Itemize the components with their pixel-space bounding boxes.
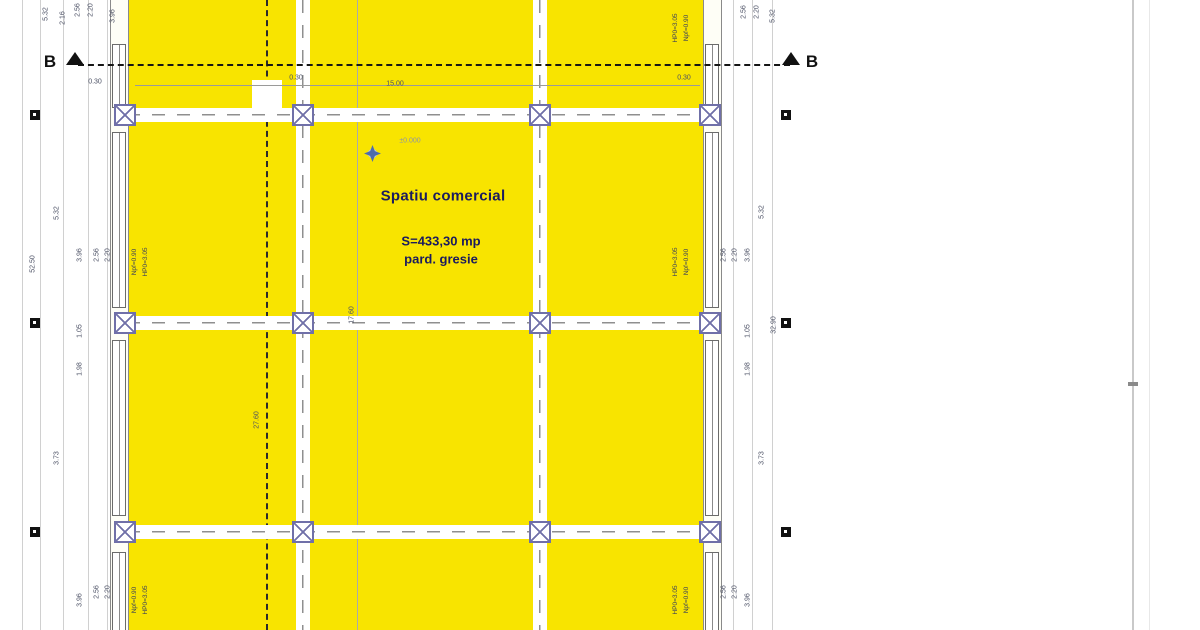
dimension-chain-line: [733, 0, 734, 630]
window: [705, 552, 719, 630]
dim-label: 3.96: [745, 248, 752, 262]
dim-label: 1.98: [745, 362, 752, 376]
dim-label: 2.56: [75, 3, 82, 17]
window-note: HP0=3.05: [143, 247, 150, 276]
dim-label: 5.32: [54, 206, 61, 220]
dim-label: 3.96: [77, 593, 84, 607]
column-marker: [114, 104, 136, 126]
dim-label: 2.20: [754, 5, 761, 19]
axis-marker: [30, 110, 40, 120]
dim-label: 2.56: [94, 585, 101, 599]
section-arrow-left: [66, 52, 84, 65]
column-marker: [292, 104, 314, 126]
dim-label: 1.98: [77, 362, 84, 376]
axis-marker: [781, 110, 791, 120]
column-marker: [292, 312, 314, 334]
dimension-chain-line: [22, 0, 23, 630]
window: [705, 132, 719, 308]
section-arrow-right: [782, 52, 800, 65]
window: [112, 340, 126, 516]
dim-label: 3.96: [110, 9, 117, 23]
window-note: HP0=3.05: [143, 585, 150, 614]
window: [112, 552, 126, 630]
dim-label: 1.05: [77, 324, 84, 338]
room-name: Spatiu comercial: [381, 188, 506, 205]
window-note: Npf=0.90: [684, 15, 691, 42]
dim-label: 3.73: [759, 451, 766, 465]
dim-label: 2.20: [105, 248, 112, 262]
dim-label: 0.30: [677, 75, 691, 82]
window-note: HP0=3.05: [673, 247, 680, 276]
axis-marker: [30, 527, 40, 537]
dim-label: 2.56: [94, 248, 101, 262]
dimension-chain-line: [752, 0, 753, 630]
column-marker: [699, 521, 721, 543]
page-edge-line: [1132, 0, 1134, 630]
window-note: Npf=0.90: [684, 587, 691, 614]
axis-marker: [781, 527, 791, 537]
beam-strip-horizontal: [127, 525, 703, 539]
dim-label: 1.05: [745, 324, 752, 338]
dimension-chain-line: [107, 0, 108, 630]
section-label-right: B: [806, 52, 818, 72]
window-note: Npf=0.90: [132, 587, 139, 614]
dimension-chain-line: [88, 0, 89, 630]
floor-plan-canvas: B B ±0.000 Spatiu comercial S=433,30 mp …: [0, 0, 1200, 630]
dim-label: 5.32: [43, 7, 50, 21]
column-marker: [529, 104, 551, 126]
window: [112, 132, 126, 308]
window: [705, 340, 719, 516]
window-note: HP0=3.05: [673, 13, 680, 42]
dim-label: 2.56: [741, 5, 748, 19]
column-marker: [114, 312, 136, 334]
dim-label: 32.90: [771, 316, 778, 334]
dim-label: 2.20: [732, 585, 739, 599]
level-value: ±0.000: [399, 138, 420, 145]
dim-label: 17.60: [349, 306, 356, 324]
dim-label: 27.60: [254, 411, 261, 429]
column-marker: [114, 521, 136, 543]
page-edge-line-faint: [1149, 0, 1150, 630]
edge-tick: [1128, 382, 1138, 386]
window: [112, 44, 126, 108]
section-line-bb: [78, 64, 790, 66]
dim-label: 2.20: [88, 3, 95, 17]
dim-label: 2.56: [721, 248, 728, 262]
window: [705, 44, 719, 108]
dim-label: 2.20: [732, 248, 739, 262]
level-marker-icon: [364, 145, 381, 162]
dim-label: 0.30: [88, 79, 102, 86]
dim-label: 5.32: [759, 205, 766, 219]
dim-label: 3.73: [54, 451, 61, 465]
dim-label: 5.32: [770, 9, 777, 23]
axis-marker: [781, 318, 791, 328]
dimension-chain-line: [63, 0, 64, 630]
room-area: S=433,30 mp: [401, 234, 480, 249]
beam-strip-horizontal: [127, 108, 703, 122]
beam-strip-horizontal: [127, 316, 703, 330]
dimension-line-top: [135, 85, 700, 86]
window-note: HP0=3.05: [673, 585, 680, 614]
dim-label: 2.16: [60, 11, 67, 25]
window-note: Npf=0.90: [684, 249, 691, 276]
dim-label: 15.00: [386, 81, 404, 88]
window-note: Npf=0.90: [132, 249, 139, 276]
column-marker: [529, 312, 551, 334]
column-marker: [699, 104, 721, 126]
column-marker: [529, 521, 551, 543]
axis-marker: [30, 318, 40, 328]
dim-label: 3.96: [745, 593, 752, 607]
dim-label: 2.20: [105, 585, 112, 599]
column-marker: [699, 312, 721, 334]
dim-label: 2.56: [721, 585, 728, 599]
column-marker: [292, 521, 314, 543]
dim-label: 3.96: [77, 248, 84, 262]
dimension-chain-line: [40, 0, 41, 630]
room-flooring: pard. gresie: [404, 252, 478, 267]
dim-label: 0.30: [289, 75, 303, 82]
section-label-left: B: [44, 52, 56, 72]
dim-label: 52.50: [30, 255, 37, 273]
